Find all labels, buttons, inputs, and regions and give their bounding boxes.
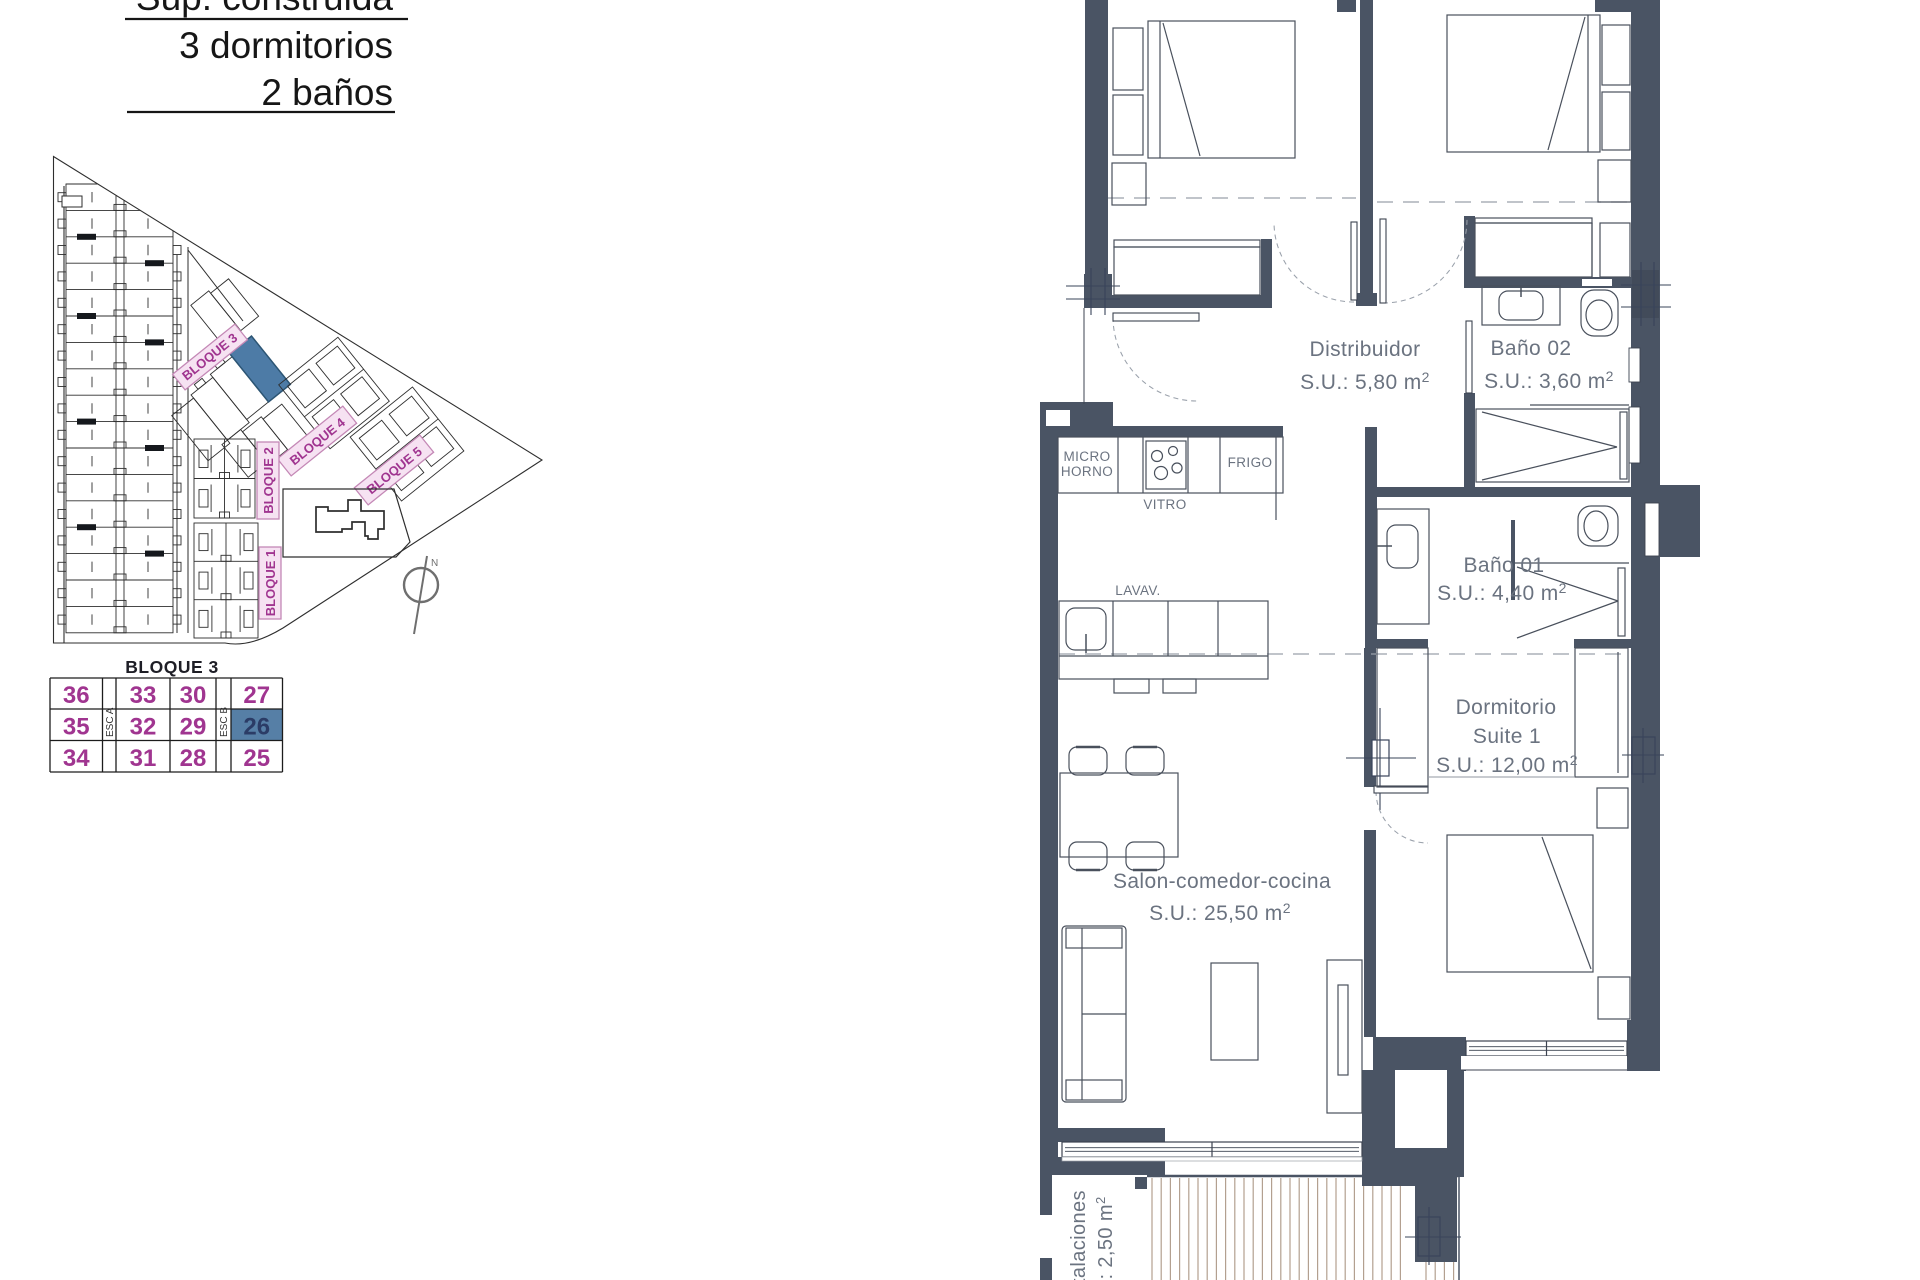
svg-text:26: 26 [243,714,270,741]
svg-text:BLOQUE 3: BLOQUE 3 [125,657,218,677]
svg-text:Baño 02: Baño 02 [1490,337,1571,360]
svg-text:N: N [431,558,438,569]
svg-text:Distribuidor: Distribuidor [1310,338,1421,361]
svg-text:S.U.: 3,60 m2: S.U.: 3,60 m2 [1484,368,1614,393]
svg-text:2 baños: 2 baños [261,72,393,113]
svg-text:BLOQUE 2: BLOQUE 2 [261,447,276,513]
svg-text:HORNO: HORNO [1061,464,1113,479]
svg-text:30: 30 [180,682,207,709]
svg-text:Instalaciones: Instalaciones [1068,1190,1090,1280]
svg-text:FRIGO: FRIGO [1228,455,1273,470]
svg-text:Sup. construida: Sup. construida [136,0,394,18]
svg-text:VITRO: VITRO [1143,497,1186,512]
svg-text:S.U.: 2,50 m2: S.U.: 2,50 m2 [1093,1196,1117,1280]
svg-text:32: 32 [130,714,157,741]
svg-text:27: 27 [243,682,270,709]
svg-text:BLOQUE 1: BLOQUE 1 [263,550,278,616]
svg-text:ESC B: ESC B [219,707,230,737]
svg-text:LAVAV.: LAVAV. [1115,583,1160,598]
svg-text:28: 28 [180,745,207,772]
svg-text:S.U.: 25,50 m2: S.U.: 25,50 m2 [1149,900,1291,925]
svg-text:S.U.: 12,00 m2: S.U.: 12,00 m2 [1436,752,1578,777]
svg-text:Dormitorio: Dormitorio [1456,696,1557,719]
svg-text:34: 34 [63,745,90,772]
svg-text:S.U.: 5,80 m2: S.U.: 5,80 m2 [1300,369,1430,394]
svg-text:33: 33 [130,682,157,709]
svg-text:3 dormitorios: 3 dormitorios [179,25,393,66]
svg-text:MICRO: MICRO [1064,449,1111,464]
svg-text:ESC A: ESC A [105,707,116,737]
svg-text:Suite 1: Suite 1 [1473,725,1541,748]
svg-text:31: 31 [130,745,157,772]
svg-text:35: 35 [63,714,90,741]
svg-text:Baño 01: Baño 01 [1463,554,1544,577]
svg-text:29: 29 [180,714,207,741]
svg-text:36: 36 [63,682,90,709]
svg-text:Salon-comedor-cocina: Salon-comedor-cocina [1113,870,1331,893]
svg-text:S.U.: 4,40 m2: S.U.: 4,40 m2 [1437,580,1567,605]
svg-text:25: 25 [243,745,270,772]
